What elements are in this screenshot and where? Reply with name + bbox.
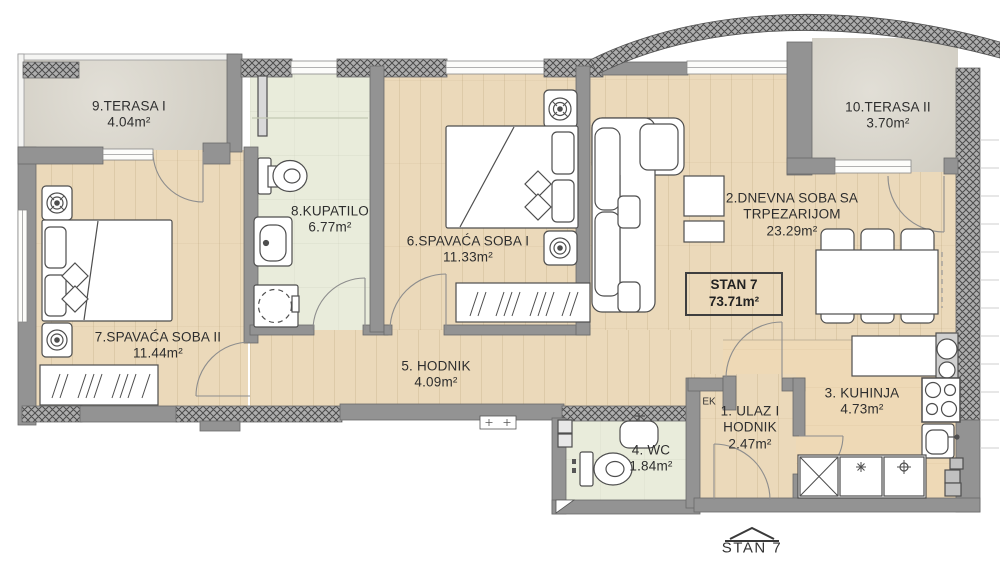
- wall: [793, 378, 805, 436]
- label-kuhinja: 3. KUHINJA 4.73m²: [825, 386, 900, 419]
- double-bed-icon: [42, 220, 172, 321]
- label-hodnik: 5. HODNIK 4.09m²: [401, 359, 470, 392]
- nightstand-lamp-icon: [544, 231, 577, 265]
- room-area: 11.44m²: [95, 346, 221, 362]
- toilet-icon: [258, 158, 307, 194]
- label-dnevna: 2.DNEVNA SOBA SA TRPEZARIJOM 23.29m²: [726, 190, 858, 239]
- wall-stub: [200, 421, 240, 431]
- corner-sofa-icon: [592, 118, 684, 312]
- wall-pier: [787, 42, 812, 175]
- room-area: 4.09m²: [401, 375, 470, 391]
- electrical-cabinet-label: EK: [702, 397, 715, 408]
- wall: [80, 406, 178, 422]
- room-name: HODNIK: [721, 420, 780, 436]
- hatch-wall: [22, 406, 82, 422]
- wall: [340, 404, 564, 420]
- wall: [787, 158, 835, 174]
- room-area: 23.29m²: [726, 223, 858, 239]
- wall-stub: [688, 378, 723, 391]
- label-kupatilo: 8.KUPATILO 6.77m²: [291, 204, 369, 237]
- wall: [203, 143, 230, 164]
- nightstand-lamp-icon: [42, 323, 72, 357]
- room-area: 4.73m²: [825, 402, 900, 418]
- door-spavaca-1: [390, 274, 446, 330]
- furniture: [40, 76, 963, 498]
- unit-summary-box: STAN 7 73.71m²: [685, 272, 783, 316]
- washbasin-icon: [254, 217, 292, 266]
- hatch-wall: [562, 406, 694, 421]
- door-terasa-2: [888, 176, 944, 232]
- unit-area: 73.71m²: [709, 294, 759, 311]
- room-name: 5. HODNIK: [401, 359, 470, 375]
- kitchen-cabinets-icon: [798, 455, 926, 498]
- room-name: 9.TERASA I: [92, 99, 166, 115]
- room-area: 4.04m²: [92, 115, 166, 131]
- wall: [552, 500, 700, 514]
- appliance-boxes-icon: [945, 458, 963, 496]
- radiator-icon: [258, 76, 267, 136]
- unit-name: STAN 7: [710, 277, 757, 294]
- floor-plan: 9.TERASA I 4.04m² 7.SPAVAĆA SOBA II 11.4…: [0, 0, 1000, 568]
- dimension-ticks: [980, 140, 999, 448]
- nightstand-lamp-icon: [544, 90, 577, 128]
- toilet-icon: [572, 452, 632, 486]
- double-bed-icon: [446, 126, 578, 228]
- nightstand-lamp-icon: [42, 186, 72, 220]
- wall: [18, 147, 103, 164]
- hatch-wall: [176, 406, 342, 422]
- room-name: TRPEZARIJOM: [726, 207, 858, 223]
- wardrobe-icon: [456, 283, 590, 322]
- stove-icon: [922, 378, 960, 422]
- plan-drawing: [0, 0, 1000, 568]
- hatch-wall: [337, 59, 447, 77]
- wall-pier: [227, 54, 242, 152]
- wall: [686, 378, 700, 508]
- door-terasa-1: [153, 152, 203, 202]
- wardrobe-icon: [40, 365, 158, 405]
- dining-table-icon: [816, 250, 938, 314]
- label-ulaz: 1. ULAZ I HODNIK 2.47m²: [721, 403, 780, 452]
- washing-machine-icon: [254, 285, 299, 327]
- terrace1-railing-top: [18, 54, 238, 60]
- room-area: 2.47m²: [721, 436, 780, 452]
- door-dnevna-ulaz: [726, 322, 782, 378]
- room-name: 3. KUHINJA: [825, 386, 900, 402]
- vent-grille-icon: [480, 416, 516, 429]
- wall-stub: [944, 158, 958, 174]
- room-name: 10.TERASA II: [845, 100, 931, 116]
- hatch-wall: [956, 68, 980, 420]
- double-sink-icon: [936, 333, 958, 378]
- room-name: 4. WC: [629, 443, 672, 459]
- room-name: 2.DNEVNA SOBA SA: [726, 190, 858, 206]
- unit-footer-label: STAN 7: [722, 540, 782, 557]
- label-spavaca-1: 6.SPAVAĆA SOBA I 11.33m²: [407, 234, 530, 267]
- hatch-wall: [241, 59, 292, 77]
- wall: [444, 325, 590, 335]
- label-wc: 4. WC 1.84m²: [629, 443, 672, 476]
- room-name: 7.SPAVAĆA SOBA II: [95, 330, 221, 346]
- room-area: 6.77m²: [291, 220, 369, 236]
- coffee-table-icon: [684, 176, 724, 242]
- wall: [370, 66, 384, 332]
- dining-set-icon: [816, 229, 942, 323]
- label-terasa-1: 9.TERASA I 4.04m²: [92, 99, 166, 132]
- room-name: 1. ULAZ I: [721, 403, 780, 419]
- room-area: 11.33m²: [407, 250, 530, 266]
- label-spavaca-2: 7.SPAVAĆA SOBA II 11.44m²: [95, 330, 221, 363]
- kitchen-sink-icon: [922, 424, 959, 458]
- kitchen-counter-icon: [852, 336, 938, 376]
- hatch-wall: [23, 62, 79, 78]
- shaft-boxes-icon: [558, 420, 572, 447]
- room-area: 1.84m²: [629, 459, 672, 475]
- room-area: 3.70m²: [845, 116, 931, 132]
- door-kupatilo: [313, 278, 365, 330]
- room-name: 8.KUPATILO: [291, 204, 369, 220]
- wall: [694, 498, 980, 512]
- wall-stub: [384, 325, 392, 335]
- room-name: 6.SPAVAĆA SOBA I: [407, 234, 530, 250]
- label-terasa-2: 10.TERASA II 3.70m²: [845, 100, 931, 133]
